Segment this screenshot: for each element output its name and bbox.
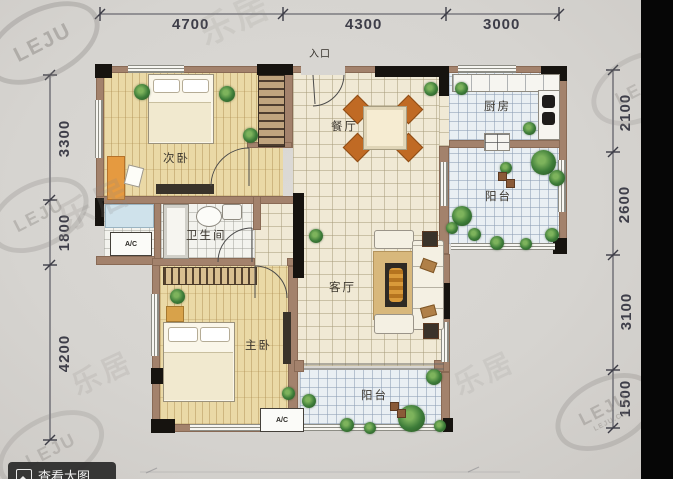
dim-right-3: 3100: [618, 293, 635, 330]
dim-right-4: 1500: [617, 380, 634, 417]
plant-icon: [545, 228, 559, 242]
column-bottom-left: [151, 419, 175, 433]
tv-wall-column: [293, 193, 304, 278]
wall-master-top: [152, 258, 255, 266]
floorplan-image[interactable]: A/C A/C: [0, 0, 673, 479]
bathroom-sink: [222, 204, 242, 220]
pillow: [200, 327, 230, 342]
window-kitchen-top: [458, 65, 516, 73]
desk: [107, 156, 125, 200]
plant-icon: [340, 418, 354, 432]
flower-pot: [506, 179, 515, 188]
pillow: [182, 79, 209, 93]
photo-edge-bar: [641, 0, 673, 479]
leju-watermark-text: LEJU: [10, 18, 76, 67]
wall-nook-bottom: [96, 256, 160, 265]
dim-left-1: 3300: [56, 120, 73, 157]
wall-bedroom2-bottom: [96, 196, 295, 204]
label-secondary-bedroom: 次卧: [163, 150, 190, 166]
tv-cabinet-secondary: [156, 184, 214, 194]
slider-post-left: [294, 360, 304, 372]
plant-icon: [523, 122, 536, 135]
wall-right-upper: [559, 66, 567, 252]
ac-label: A/C: [125, 241, 137, 248]
dim-right-2: 2600: [616, 186, 633, 223]
window-bedroom2-left: [95, 100, 103, 158]
column-kitchen-left: [439, 66, 449, 96]
window-balcony-right-wall: [558, 160, 566, 212]
sofa-top: [374, 230, 414, 249]
plant-icon: [468, 228, 481, 241]
label-entrance: 入口: [309, 45, 331, 60]
stove-burner: [542, 112, 555, 125]
leju-watermark-cn: 乐居: [65, 340, 140, 403]
water-heater-panel: [105, 204, 154, 228]
plant-icon: [282, 387, 295, 400]
wall-bath-divider: [154, 203, 161, 261]
pillow: [153, 79, 180, 93]
column-top-mid: [257, 64, 293, 75]
dim-left-2: 1800: [56, 214, 73, 251]
dim-top-1: 4700: [172, 16, 209, 33]
ac-platform-bottom: A/C: [260, 408, 304, 432]
wall-bath-right: [253, 196, 261, 230]
label-balcony-bottom: 阳台: [361, 387, 388, 403]
label-living-room: 客厅: [329, 279, 356, 295]
plant-icon: [520, 238, 532, 250]
plant-icon: [455, 82, 468, 95]
plant-icon: [219, 86, 235, 102]
table-runner: [389, 268, 403, 302]
plant-icon: [424, 82, 438, 96]
label-dining-room: 餐厅: [331, 118, 358, 134]
leju-watermark-cn: 乐居: [447, 340, 522, 403]
plant-icon: [364, 422, 376, 434]
view-large-image-button[interactable]: 查看大图: [8, 462, 116, 479]
ac-platform-left: A/C: [110, 232, 152, 256]
window-master-left: [151, 294, 159, 356]
plant-icon: [426, 369, 442, 385]
side-table: [423, 323, 439, 339]
window-balcony-left-wall: [440, 162, 448, 206]
blanket: [149, 102, 211, 142]
label-balcony-right: 阳台: [485, 188, 512, 204]
label-kitchen: 厨房: [484, 98, 511, 114]
dim-left-3: 4200: [56, 335, 73, 372]
image-icon: [16, 469, 32, 479]
view-large-image-label: 查看大图: [38, 466, 90, 479]
kitchen-door-gap: [439, 96, 449, 146]
tv-cabinet-master: [283, 312, 291, 364]
wall-closet-right: [284, 73, 293, 148]
nightstand: [166, 306, 184, 322]
flower-pot: [397, 409, 406, 418]
window-bedroom2-top: [128, 65, 184, 73]
leju-watermark: LEJU: [0, 162, 101, 269]
column-top-entry-right: [375, 66, 445, 77]
ac-label: A/C: [276, 417, 288, 424]
plant-icon: [170, 289, 185, 304]
plant-icon: [302, 394, 316, 408]
entrance-gap: [301, 62, 345, 75]
window-master-bottom: [190, 424, 264, 431]
blanket: [164, 352, 233, 400]
kitchen-sink-unit: [484, 133, 510, 151]
label-bathroom: 卫生间: [186, 227, 227, 243]
plant-icon: [446, 222, 458, 234]
column-left-step: [95, 198, 104, 226]
plant-icon: [549, 170, 565, 186]
plant-icon: [490, 236, 504, 250]
label-master-bedroom: 主卧: [245, 337, 272, 353]
dim-top-2: 4300: [345, 16, 382, 33]
plant-icon: [243, 128, 258, 143]
plant-icon: [134, 84, 150, 100]
dining-table: [363, 106, 407, 150]
dim-right-1: 2100: [617, 94, 634, 131]
plant-icon: [434, 420, 446, 432]
pillow: [168, 327, 198, 342]
side-table: [422, 231, 438, 247]
dim-top-3: 3000: [483, 16, 520, 33]
bookshelf: [258, 75, 285, 147]
stove-burner: [542, 95, 555, 108]
column-top-left: [95, 64, 112, 78]
wardrobe-master: [163, 267, 257, 285]
plant-icon: [309, 229, 323, 243]
sofa-bottom: [374, 314, 414, 334]
toilet: [196, 206, 222, 227]
